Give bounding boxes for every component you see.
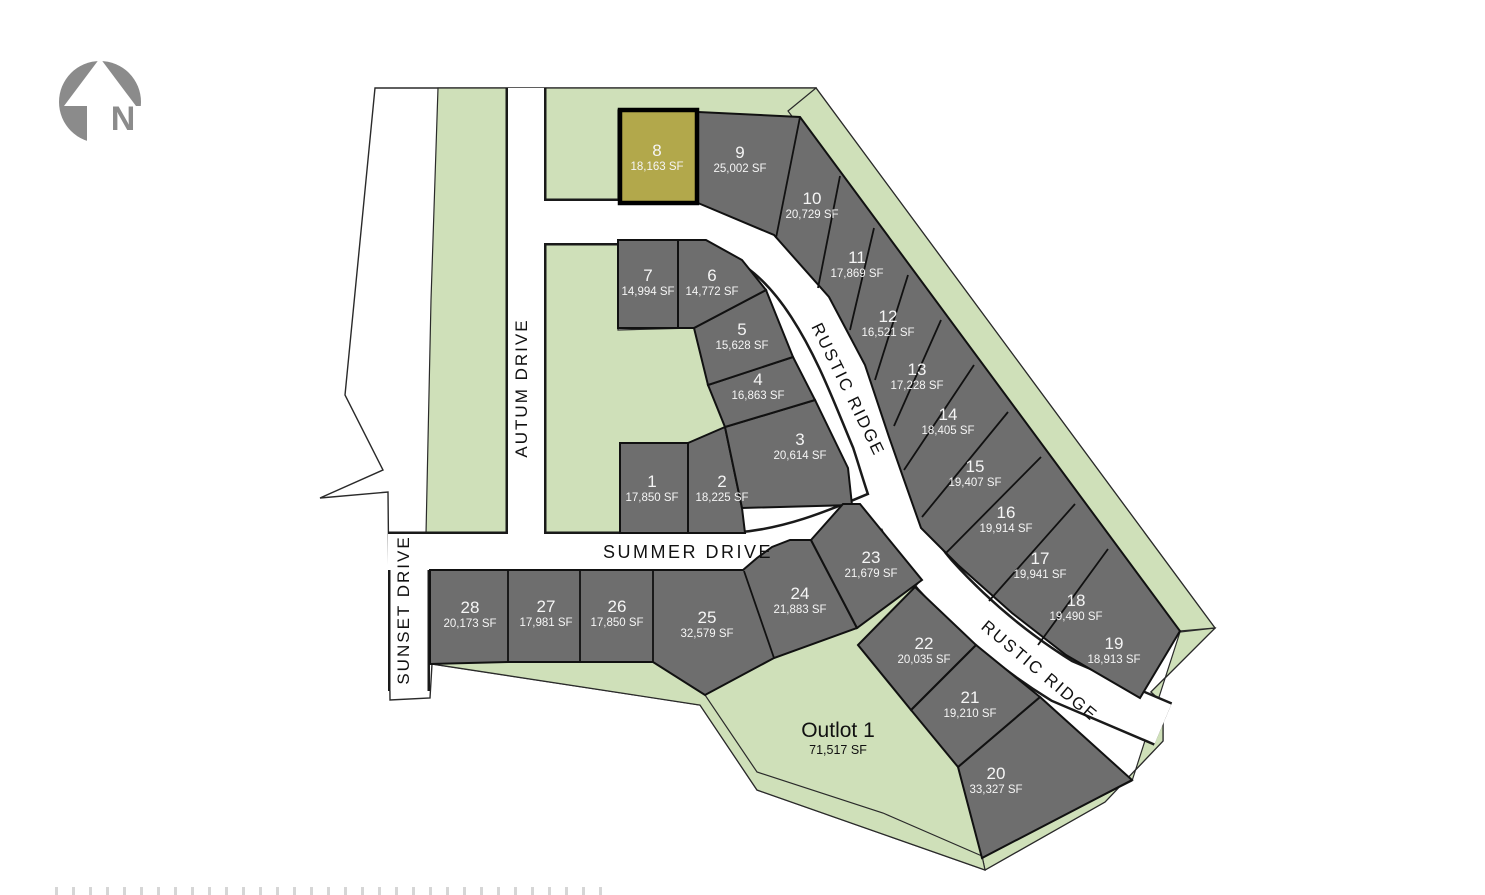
lot-23-area-label: 21,679 SF <box>844 568 897 580</box>
lot-10-area-label: 20,729 SF <box>785 209 838 221</box>
lot-21-area-label: 19,210 SF <box>943 708 996 720</box>
lot-26-area-label: 17,850 SF <box>590 617 643 629</box>
plat-map-svg: 117,850 SF218,225 SF320,614 SF416,863 SF… <box>0 0 1485 895</box>
lot-13-area-label: 17,228 SF <box>890 380 943 392</box>
lot-8-area-label: 18,163 SF <box>630 161 683 173</box>
lot-10-number-label: 10 <box>803 189 822 208</box>
lot-26-number-label: 26 <box>608 597 627 616</box>
lot-9-number-label: 9 <box>735 143 744 162</box>
lot-19-number-label: 19 <box>1105 634 1124 653</box>
plat-map-page: 117,850 SF218,225 SF320,614 SF416,863 SF… <box>0 0 1485 895</box>
lot-3-area-label: 20,614 SF <box>773 450 826 462</box>
lot-5-number-label: 5 <box>737 320 746 339</box>
lot-outlot-number-label: Outlot 1 <box>801 719 875 742</box>
lot-11-number-label: 11 <box>848 248 866 267</box>
north-arrow: N <box>59 58 143 152</box>
lot-21-number-label: 21 <box>961 688 980 707</box>
lot-5-area-label: 15,628 SF <box>715 340 768 352</box>
lot-11-area-label: 17,869 SF <box>830 268 883 280</box>
lot-6-area-label: 14,772 SF <box>685 286 738 298</box>
lot-8-number-label: 8 <box>652 141 661 160</box>
lot-22-number-label: 22 <box>915 634 934 653</box>
north-label: N <box>111 100 136 138</box>
lot-27-area-label: 17,981 SF <box>519 617 572 629</box>
autum-drive-label: AUTUM DRIVE <box>512 318 531 457</box>
lot-28-area-label: 20,173 SF <box>443 618 496 630</box>
lot-24-area-label: 21,883 SF <box>773 604 826 616</box>
lot-9-area-label: 25,002 SF <box>713 163 766 175</box>
lot-1-number-label: 1 <box>647 472 656 491</box>
lot-17-area-label: 19,941 SF <box>1013 569 1066 581</box>
lot-4-number-label: 4 <box>753 370 762 389</box>
lot-6-number-label: 6 <box>707 266 716 285</box>
lot-2-area-label: 18,225 SF <box>695 492 748 504</box>
lot-16-area-label: 19,914 SF <box>979 523 1032 535</box>
lot-20-area-label: 33,327 SF <box>969 784 1022 796</box>
lot-19-area-label: 18,913 SF <box>1087 654 1140 666</box>
lot-28-number-label: 28 <box>461 598 480 617</box>
lot-12-number-label: 12 <box>879 307 898 326</box>
lot-7-number-label: 7 <box>643 266 652 285</box>
lot-7-area-label: 14,994 SF <box>621 286 674 298</box>
lot-24-number-label: 24 <box>791 584 810 603</box>
lot-18-number-label: 18 <box>1067 591 1086 610</box>
lot-2-number-label: 2 <box>717 472 726 491</box>
summer-drive-label: SUMMER DRIVE <box>603 542 773 562</box>
lot-3-number-label: 3 <box>795 430 804 449</box>
lot-18-area-label: 19,490 SF <box>1049 611 1102 623</box>
lot-23-number-label: 23 <box>862 548 881 567</box>
lot-12-area-label: 16,521 SF <box>861 327 914 339</box>
lot-25-area-label: 32,579 SF <box>680 628 733 640</box>
lot-17-number-label: 17 <box>1031 549 1050 568</box>
lot-1-area-label: 17,850 SF <box>625 492 678 504</box>
lot-14-area-label: 18,405 SF <box>921 425 974 437</box>
lot-15-number-label: 15 <box>966 457 985 476</box>
sunset-drive-label: SUNSET DRIVE <box>394 535 413 684</box>
lot-13-number-label: 13 <box>908 360 927 379</box>
lot-22-area-label: 20,035 SF <box>897 654 950 666</box>
lot-4-area-label: 16,863 SF <box>731 390 784 402</box>
lot-27-number-label: 27 <box>537 597 556 616</box>
lot-15-area-label: 19,407 SF <box>948 477 1001 489</box>
lot-25-number-label: 25 <box>698 608 717 627</box>
lot-14-number-label: 14 <box>939 405 958 424</box>
green-strip-west <box>426 88 508 534</box>
lot-outlot-area-label: 71,517 SF <box>809 743 867 757</box>
lot-16-number-label: 16 <box>997 503 1016 522</box>
clipped-footer-text <box>55 887 615 895</box>
lot-20-number-label: 20 <box>987 764 1006 783</box>
